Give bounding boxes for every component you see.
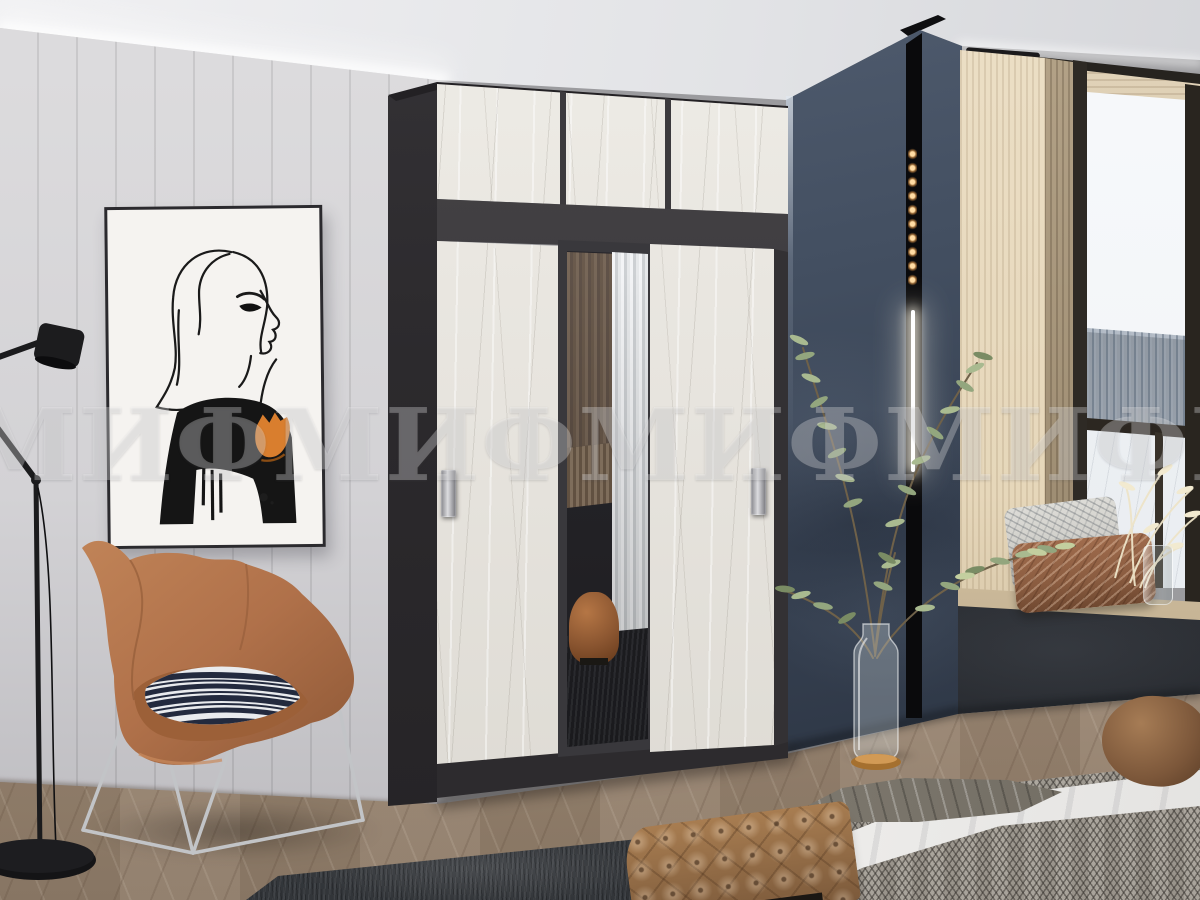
bedroom-product-photo: МИФ МИФ МИФ МИФ МИФ <box>0 0 1200 900</box>
mirror-reflected-ottoman <box>569 592 619 664</box>
door-handle-right <box>751 468 766 515</box>
bench-base <box>641 892 823 900</box>
armchair <box>50 532 390 877</box>
led-track-dots <box>908 148 917 288</box>
dried-flowers-vase <box>1143 545 1173 605</box>
door-handle-left <box>441 470 456 517</box>
mirror-reflected-ottoman-base <box>580 658 608 665</box>
plant <box>775 318 1085 778</box>
